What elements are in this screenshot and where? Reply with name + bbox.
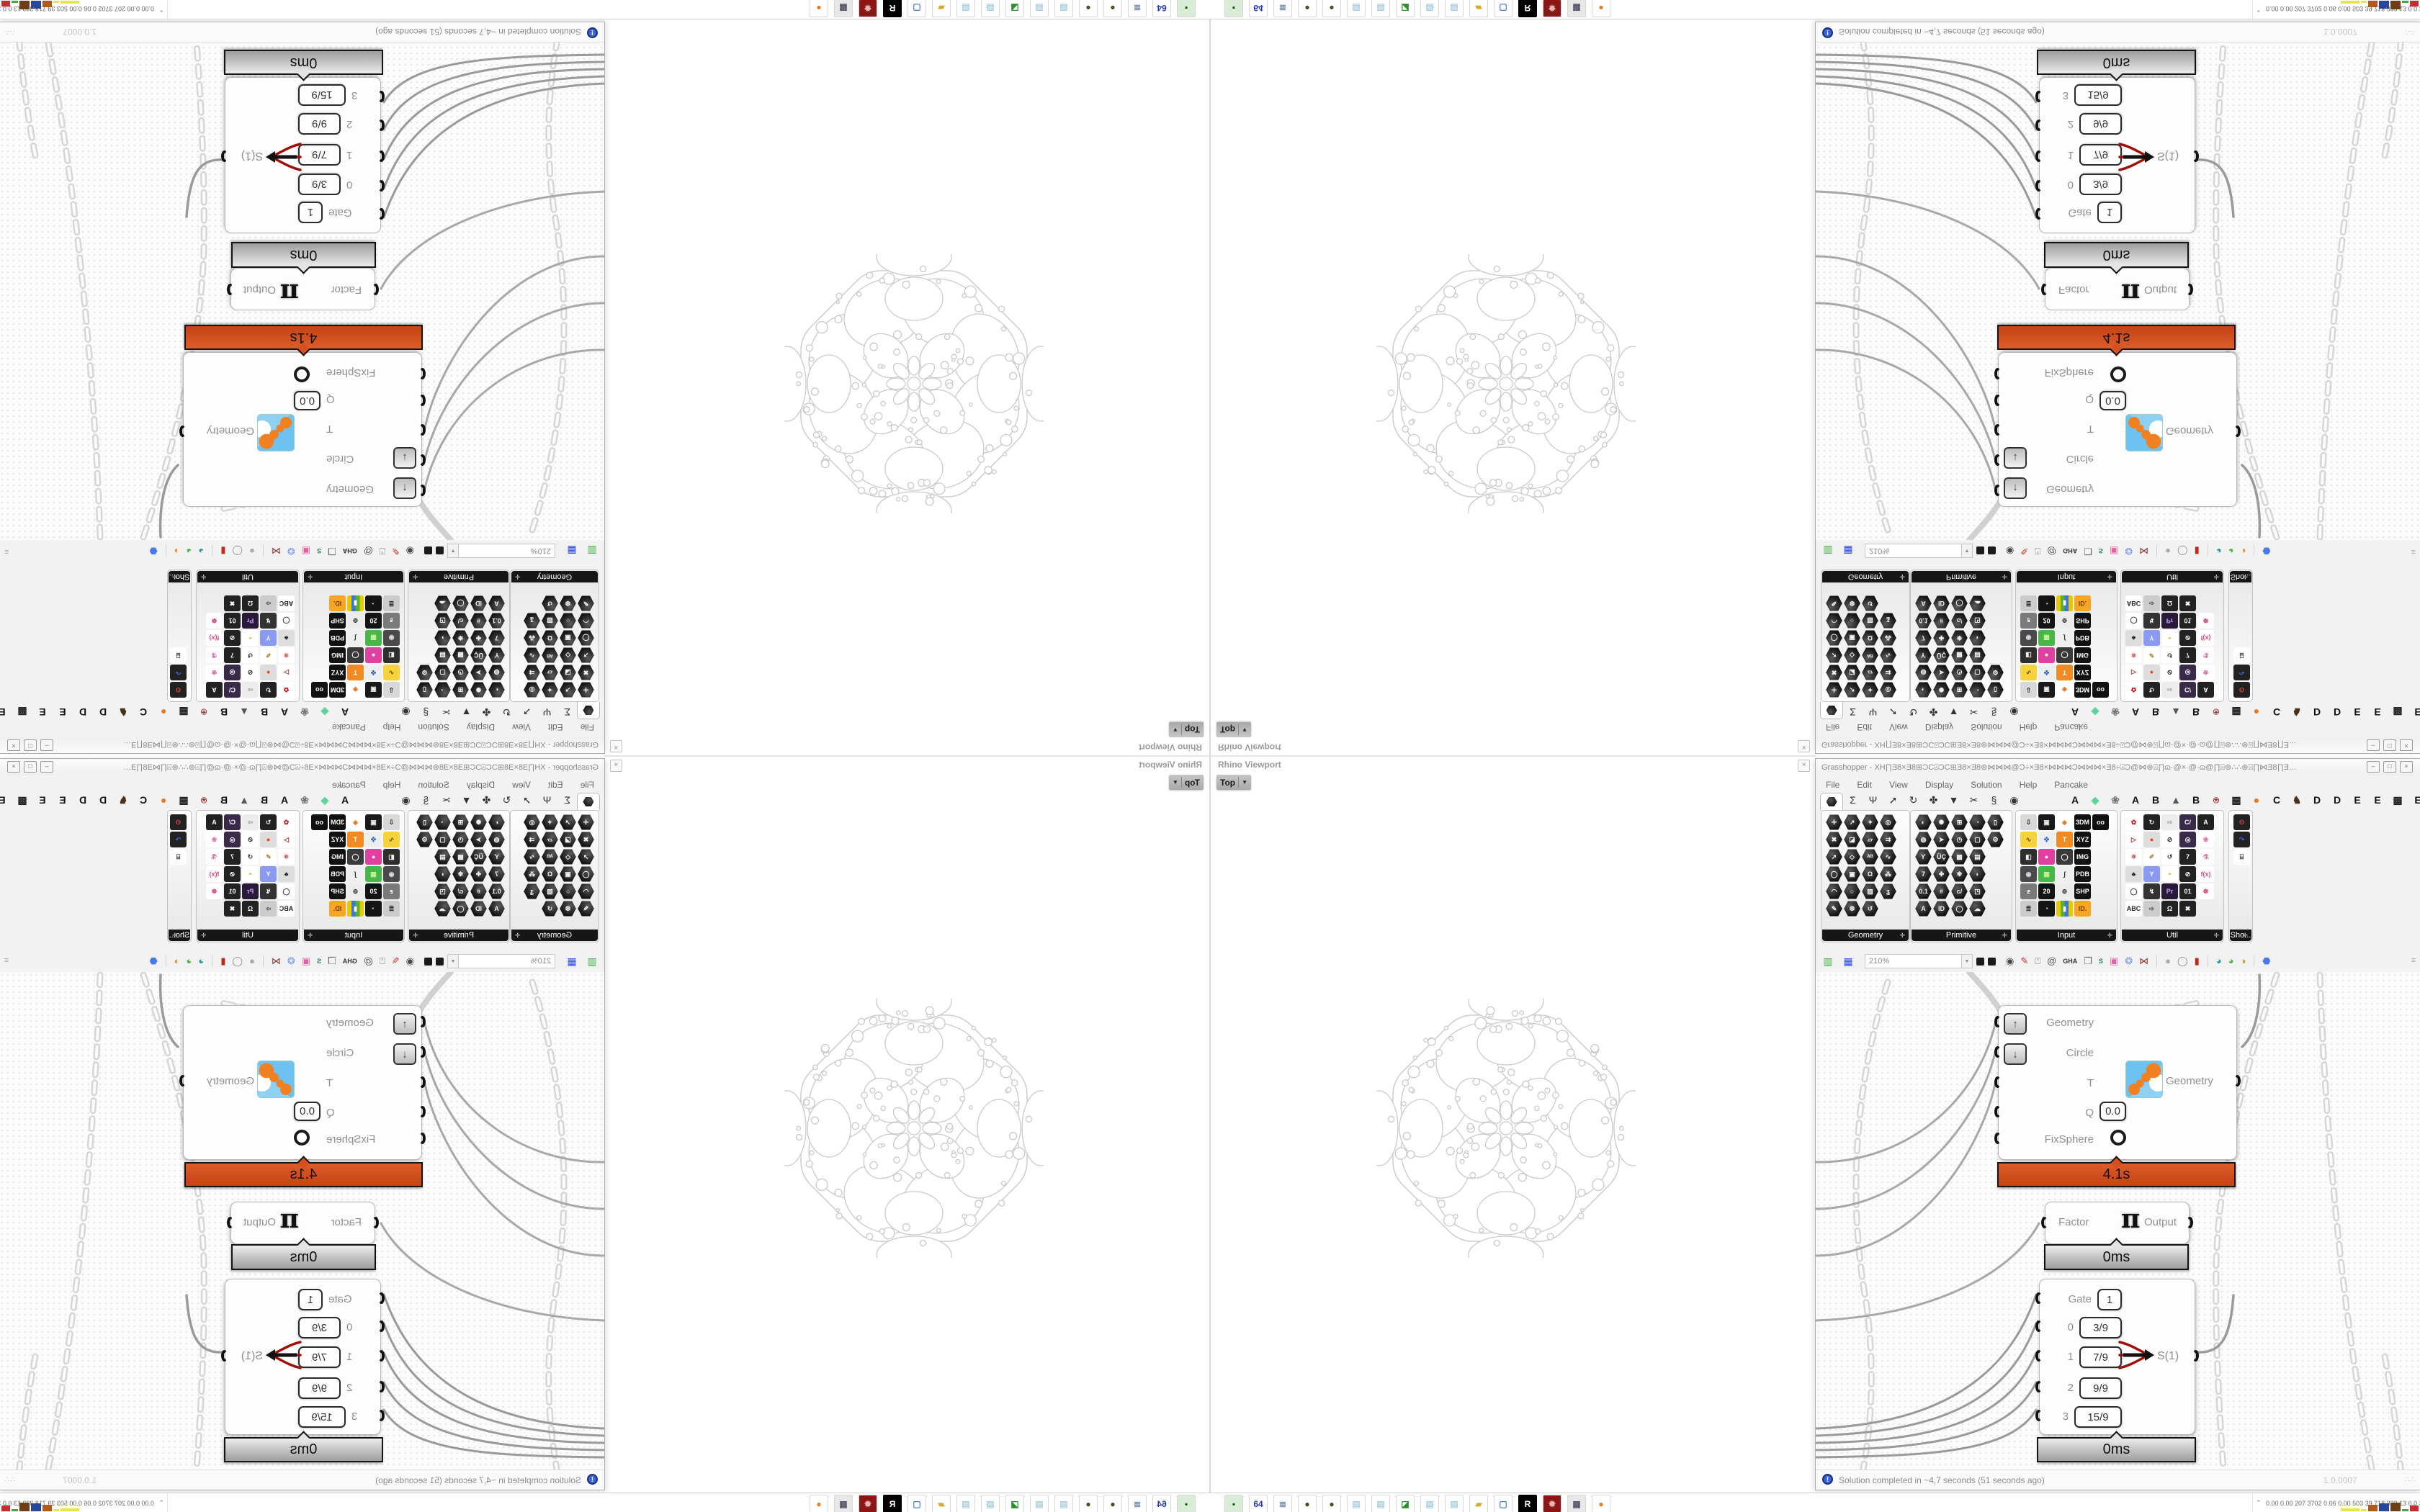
plugin-tab-12[interactable]: D	[2311, 706, 2323, 718]
wire-sphere-icon[interactable]: ◯	[2177, 544, 2188, 558]
plugin-tab-4[interactable]: B	[259, 706, 270, 718]
menu-item-solution[interactable]: Solution	[1971, 722, 2002, 732]
component-icon[interactable]: ◯	[1826, 866, 1842, 882]
component-icon[interactable]: ✺	[1933, 814, 1950, 830]
gate-value-box-3[interactable]: 9/9	[298, 113, 341, 135]
component-icon[interactable]: ∿	[2020, 832, 2037, 847]
component-icon[interactable]: ↗	[1844, 682, 1860, 698]
palette-title-bar[interactable]: Input✛	[2017, 930, 2116, 941]
component-icon[interactable]: ◐	[488, 682, 505, 698]
component-icon[interactable]: c/	[1951, 883, 1968, 899]
component-icon[interactable]: A	[2197, 814, 2214, 830]
component-icon[interactable]: ◎	[524, 814, 540, 830]
component-icon[interactable]: Ω	[242, 901, 259, 917]
component-icon[interactable]: ●	[365, 849, 382, 865]
notepad-icon[interactable]: ▤	[981, 0, 1000, 17]
close-button[interactable]: ×	[7, 739, 20, 751]
menu-item-file[interactable]: File	[1826, 722, 1839, 732]
component-icon[interactable]: c/	[452, 883, 469, 899]
category-tab-icon-2[interactable]: ➚	[521, 706, 532, 718]
component-icon[interactable]: ○	[560, 613, 576, 629]
notepad-icon[interactable]: ▤	[1347, 1495, 1366, 1512]
component-icon[interactable]: 0.1	[1915, 883, 1932, 899]
close-icon[interactable]: ×	[1798, 740, 1810, 752]
calculator-icon[interactable]: ▦	[1567, 1495, 1586, 1512]
component-icon[interactable]: ◪	[560, 832, 576, 847]
blue-hex-icon[interactable]: ⬣	[2262, 544, 2270, 558]
plugin-tab-4[interactable]: B	[2150, 794, 2161, 806]
component-icon[interactable]: T	[2056, 665, 2073, 680]
component-icon[interactable]: ✎	[578, 901, 594, 917]
component-icon[interactable]: oo	[311, 814, 328, 830]
plugin-tab-7[interactable]: ⍟	[198, 794, 210, 806]
component-icon[interactable]: ○	[1844, 883, 1860, 899]
component-icon[interactable]: ▨	[1862, 883, 1878, 899]
plugin-tab-14[interactable]: E	[2352, 794, 2363, 806]
grasshopper-titlebar[interactable]: Grasshopper - XH∏Ǝ8×Ǝ8⊞ƆC⍓ƆC⊞Ǝ8×Ǝ8⊛⋈⋈⋈@Ɔ…	[1816, 759, 2420, 775]
chevron-down-icon[interactable]: ▼	[447, 954, 458, 968]
component-icon[interactable]: ▤	[434, 647, 451, 663]
maximize-button[interactable]: □	[2383, 761, 2396, 773]
component-icon[interactable]: ⚛	[278, 849, 295, 865]
component-icon[interactable]: ⌸	[170, 647, 187, 663]
expand-icon[interactable]: ✛	[515, 573, 521, 581]
component-icon[interactable]: 0.1	[1915, 613, 1932, 629]
plugin-tab-7[interactable]: ⍟	[2210, 794, 2222, 806]
component-icon[interactable]: ↻	[2143, 682, 2160, 698]
zoom-extents-icon[interactable]	[1976, 547, 1984, 555]
palette-title-bar[interactable]: Geometry✛	[511, 930, 598, 941]
component-icon[interactable]: SHP	[329, 613, 346, 629]
component-icon[interactable]: Y	[260, 630, 277, 646]
red-badge-icon[interactable]: ✹	[859, 0, 877, 17]
gate-value-box-2[interactable]: 7/9	[298, 144, 341, 166]
component-icon[interactable]: ⚛	[278, 647, 295, 663]
component-icon[interactable]: #	[1933, 613, 1950, 629]
plugin-tab-0[interactable]: A	[339, 706, 351, 718]
component-icon[interactable]: ◔	[434, 814, 451, 830]
fixsphere-component[interactable]: Geometry↑Circle↓TQ0.0FixSphere Geometry	[1998, 352, 2237, 507]
wire-sphere-icon[interactable]: ◯	[232, 544, 243, 558]
component-icon[interactable]: ∿	[383, 665, 400, 680]
component-icon[interactable]: ➤	[1933, 832, 1950, 847]
component-icon[interactable]: ◐	[488, 814, 505, 830]
component-icon[interactable]: ♣	[278, 866, 295, 882]
component-icon[interactable]: ↗	[1844, 814, 1860, 830]
component-icon[interactable]: ◯	[278, 613, 295, 629]
component-icon[interactable]: 01	[224, 883, 241, 899]
plugin-tab-17[interactable]: E	[2412, 794, 2420, 806]
component-icon[interactable]: ⚙	[1987, 665, 2004, 680]
component-icon[interactable]: ⊚	[347, 613, 364, 629]
plugin-tab-8[interactable]: ▦	[178, 706, 189, 718]
firefox-icon[interactable]: ●	[810, 1495, 828, 1512]
component-icon[interactable]: ◷	[1951, 665, 1968, 680]
component-icon[interactable]: Pr	[242, 883, 259, 899]
plugin-coin-icon[interactable]: ●	[1103, 1495, 1122, 1512]
close-button[interactable]: ×	[2400, 739, 2413, 751]
rhino-icon[interactable]: R	[1518, 0, 1537, 17]
green-sphere-icon[interactable]: ◕	[187, 544, 192, 558]
component-icon[interactable]: ➩	[260, 595, 277, 611]
plugin-tab-8[interactable]: ▦	[2231, 706, 2242, 718]
component-icon[interactable]: ▷	[2125, 665, 2142, 680]
palette-title-bar[interactable]: Geometry✛	[1822, 930, 1909, 941]
component-icon[interactable]: ID	[470, 595, 487, 611]
toolbar-collapse-icon[interactable]: ≡	[2411, 547, 2416, 556]
component-icon[interactable]: PDB	[2074, 866, 2091, 882]
component-icon[interactable]: 3DM	[2074, 814, 2091, 830]
component-icon[interactable]: ◎	[224, 832, 241, 847]
palette-title-bar[interactable]: Sho...✛	[2230, 571, 2251, 582]
plugin-tab-12[interactable]: D	[97, 794, 109, 806]
expand-icon[interactable]: ✛	[308, 932, 313, 940]
terminal-icon[interactable]: ▪	[1177, 0, 1196, 17]
component-icon[interactable]: 20	[365, 883, 382, 899]
component-icon[interactable]: 20	[365, 613, 382, 629]
component-icon[interactable]: ✎	[578, 595, 594, 611]
component-icon[interactable]: ⊘	[2161, 665, 2178, 680]
plugin-tab-9[interactable]: ●	[158, 706, 169, 718]
component-icon[interactable]: ⇩	[383, 682, 400, 698]
component-icon[interactable]: ▨	[542, 613, 558, 629]
component-icon[interactable]: ↺	[1862, 901, 1878, 917]
component-icon[interactable]: ↗	[560, 682, 576, 698]
plugin-tab-13[interactable]: D	[77, 706, 89, 718]
value-box-q[interactable]: 0.0	[294, 1102, 321, 1121]
save-file-icon[interactable]: ▦	[564, 544, 580, 558]
component-icon[interactable]: ✐	[260, 647, 277, 663]
category-tab-icon-3[interactable]: ↻	[501, 706, 512, 718]
component-icon[interactable]: ⊘	[242, 665, 259, 680]
red-badge-icon[interactable]: ✹	[1543, 1495, 1561, 1512]
component-icon[interactable]: ƶ	[2020, 883, 2037, 899]
gate-value-box-3[interactable]: 9/9	[298, 1377, 341, 1399]
component-icon[interactable]: SHP	[2074, 613, 2091, 629]
component-icon[interactable]: 20	[2038, 613, 2055, 629]
chevron-up-icon[interactable]: ⌃	[2256, 1499, 2262, 1507]
menu-item-display[interactable]: Display	[467, 722, 495, 732]
window-icon[interactable]: ❐	[328, 544, 336, 558]
component-icon[interactable]: ✐	[2143, 849, 2160, 865]
component-icon[interactable]: Ƴ	[488, 849, 505, 865]
value-box-q[interactable]: 0.0	[2099, 1102, 2126, 1121]
expand-icon[interactable]: ✛	[172, 573, 178, 581]
plugin-tab-10[interactable]: C	[2271, 706, 2282, 718]
component-icon[interactable]: ▤	[434, 849, 451, 865]
fixsphere-component[interactable]: Geometry↑Circle↓TQ0.0FixSphere Geometry	[183, 1005, 422, 1160]
component-icon[interactable]: ⚛	[2125, 647, 2142, 663]
balloon-icon[interactable]: ❂	[287, 544, 295, 558]
swap-icon[interactable]: ⋈	[272, 954, 281, 968]
component-icon[interactable]: ◉	[2020, 630, 2037, 646]
orange-sphere-icon[interactable]: ◑	[174, 544, 180, 558]
gate-value-box-4[interactable]: 15/9	[2074, 84, 2122, 106]
zoom-extents-icon[interactable]	[436, 958, 444, 966]
rhino-icon[interactable]: R	[883, 1495, 902, 1512]
component-icon[interactable]: ▮	[347, 901, 364, 917]
component-icon[interactable]: ⁂	[524, 866, 540, 882]
component-icon[interactable]: 20	[2038, 883, 2055, 899]
minimize-button[interactable]: –	[2367, 761, 2380, 773]
category-tab-icon-7[interactable]: §	[1989, 794, 1999, 806]
window-icon[interactable]: ❐	[2084, 544, 2092, 558]
palette-title-bar[interactable]: Primitive✛	[409, 571, 508, 582]
expand-icon[interactable]: ✛	[1899, 932, 1905, 940]
component-icon[interactable]: ◔	[1969, 682, 1986, 698]
menu-item-solution[interactable]: Solution	[1971, 780, 2002, 790]
component-icon[interactable]: ◓	[242, 630, 259, 646]
component-icon[interactable]: Pr	[2161, 883, 2178, 899]
component-icon[interactable]: ⇩	[2020, 682, 2037, 698]
toolbar-collapse-icon[interactable]: ≡	[4, 956, 9, 965]
component-icon[interactable]: ◎	[2179, 665, 2196, 680]
expand-icon[interactable]: ✛	[172, 932, 178, 940]
component-icon[interactable]: IMG	[329, 647, 346, 663]
component-icon[interactable]: ▣	[1844, 866, 1860, 882]
component-icon[interactable]: C/	[2179, 814, 2196, 830]
notepad-icon[interactable]: ▤	[1371, 0, 1390, 17]
component-icon[interactable]: c/	[1951, 613, 1968, 629]
expand-icon[interactable]: ✛	[515, 932, 521, 940]
component-icon[interactable]: ◇	[560, 647, 576, 663]
component-icon[interactable]: ▦	[365, 866, 382, 882]
green-sphere-icon[interactable]: ◕	[2228, 954, 2234, 968]
plugin-tab-11[interactable]: ♞	[117, 794, 129, 806]
component-icon[interactable]: ⌸	[2233, 849, 2250, 865]
notepad-icon[interactable]: ▤	[1445, 1495, 1464, 1512]
component-icon[interactable]: ▣	[1844, 630, 1860, 646]
category-tab-icon-0[interactable]: Σ	[1847, 706, 1858, 718]
cluster-icon[interactable]: @	[2047, 544, 2056, 558]
component-icon[interactable]: ⇉	[524, 832, 540, 847]
component-icon[interactable]: ◯	[452, 901, 469, 917]
plugin-tab-8[interactable]: ▦	[2231, 794, 2242, 806]
component-icon[interactable]: ✖	[224, 595, 241, 611]
category-tab-icon-8[interactable]: ◉	[2009, 706, 2020, 718]
component-icon[interactable]: ✚	[470, 630, 487, 646]
component-icon[interactable]: Pr	[2161, 613, 2178, 629]
plugin-tab-0[interactable]: A	[2069, 706, 2081, 718]
expand-icon[interactable]: ✛	[2002, 573, 2007, 581]
chevron-down-icon[interactable]: ▼	[1962, 954, 1973, 968]
expand-icon[interactable]: ✛	[2002, 932, 2007, 940]
red-cylinder-icon[interactable]: ▮	[2195, 954, 2200, 968]
zoom-selection-icon[interactable]	[424, 547, 432, 555]
viewport-tab-top[interactable]: Top ▼	[1169, 722, 1204, 737]
plugin-tab-17[interactable]: E	[2412, 706, 2420, 718]
component-icon[interactable]: ◧	[383, 647, 400, 663]
component-icon[interactable]: ÜÇ	[1933, 647, 1950, 663]
printer-icon[interactable]: ≣	[1128, 1495, 1147, 1512]
component-icon[interactable]: ⚙	[416, 832, 433, 847]
component-icon[interactable]: ⇨	[242, 814, 259, 830]
component-icon[interactable]: ▩	[1951, 647, 1968, 663]
notepad-icon[interactable]: ▤	[956, 1495, 975, 1512]
terminal-icon[interactable]: ▪	[1177, 1495, 1196, 1512]
component-icon[interactable]: ▤	[1969, 849, 1986, 865]
component-icon[interactable]: Y	[260, 866, 277, 882]
component-icon[interactable]: ◍	[1915, 832, 1932, 847]
component-icon[interactable]: ❆	[560, 595, 576, 611]
component-icon[interactable]: ↺	[542, 901, 558, 917]
category-tab-icon-7[interactable]: §	[421, 794, 431, 806]
component-icon[interactable]: IMG	[2074, 849, 2091, 865]
cluster-icon[interactable]: @	[364, 954, 373, 968]
window-icon[interactable]: ❐	[2084, 954, 2092, 968]
component-icon[interactable]: Ω	[542, 866, 558, 882]
zoom-selection-icon[interactable]	[1988, 547, 1996, 555]
component-icon[interactable]: oo	[2092, 814, 2109, 830]
category-tab-icon-8[interactable]: ◉	[400, 706, 411, 718]
component-icon[interactable]: ⊞	[452, 682, 469, 698]
menu-item-help[interactable]: Help	[383, 722, 401, 732]
component-icon[interactable]: ▣	[365, 682, 382, 698]
plugin-tab-15[interactable]: E	[37, 794, 48, 806]
plugin-tab-10[interactable]: C	[138, 706, 149, 718]
plugin-tab-14[interactable]: E	[57, 706, 68, 718]
terminal-icon[interactable]: ▪	[1224, 1495, 1243, 1512]
component-icon[interactable]: ⊘	[2179, 866, 2196, 882]
component-icon[interactable]: ⚙	[416, 665, 433, 680]
component-icon[interactable]: ◯	[2125, 883, 2142, 899]
down-arrow-button[interactable]: ↓	[393, 1043, 416, 1065]
notepad-icon[interactable]: ▤	[956, 0, 975, 17]
component-icon[interactable]: ✺	[470, 814, 487, 830]
minimize-button[interactable]: –	[2367, 739, 2380, 751]
value-box-q[interactable]: 0.0	[294, 391, 321, 410]
component-icon[interactable]: ●	[2143, 665, 2160, 680]
open-file-icon[interactable]: ▥	[584, 954, 600, 968]
category-tab-icon-7[interactable]: §	[421, 706, 431, 718]
component-icon[interactable]: ✐	[260, 849, 277, 865]
component-icon[interactable]: ➤	[470, 665, 487, 680]
component-icon[interactable]: A	[206, 814, 223, 830]
component-icon[interactable]: ◯	[1951, 901, 1968, 917]
component-icon[interactable]: ➤	[1933, 665, 1950, 680]
component-icon[interactable]: T	[2056, 832, 2073, 847]
component-icon[interactable]: ✺	[1933, 682, 1950, 698]
component-icon[interactable]: ☁	[434, 901, 451, 917]
folder-icon[interactable]: ▰	[1469, 1495, 1488, 1512]
component-icon[interactable]: ʓ	[524, 883, 540, 899]
component-icon[interactable]: ♣	[278, 630, 295, 646]
blue-hex-icon[interactable]: ⬣	[2262, 954, 2270, 968]
gha-icon[interactable]: GHA	[343, 954, 357, 968]
minimize-button[interactable]: –	[40, 739, 53, 751]
expand-icon[interactable]: ✛	[413, 573, 418, 581]
component-icon[interactable]: ◗	[434, 866, 451, 882]
bake-icon[interactable]: ⍞	[380, 954, 385, 968]
plugin-tab-5[interactable]: ▲	[238, 706, 250, 718]
gate-output-connector[interactable]	[221, 1350, 228, 1362]
pi-output-connector[interactable]	[2187, 284, 2193, 295]
red-badge-icon[interactable]: ✹	[859, 1495, 877, 1512]
close-button[interactable]: ×	[2400, 761, 2413, 773]
component-icon[interactable]: Y	[2143, 630, 2160, 646]
component-icon[interactable]: 7	[2179, 849, 2196, 865]
component-icon[interactable]: ◉	[2020, 866, 2037, 882]
gate-value-box-0[interactable]: 1	[2097, 1289, 2122, 1310]
palette-title-bar[interactable]: Geometry✛	[1822, 571, 1909, 582]
palette-title-bar[interactable]: Input✛	[304, 930, 403, 941]
preview-eye-icon[interactable]: ◉	[406, 954, 414, 968]
component-icon[interactable]: ☁	[434, 595, 451, 611]
plugin-tab-10[interactable]: C	[138, 794, 149, 806]
menu-item-display[interactable]: Display	[1925, 780, 1953, 790]
component-icon[interactable]: ☸	[2197, 613, 2214, 629]
tab-params-active[interactable]	[577, 702, 600, 719]
component-icon[interactable]: A	[206, 682, 223, 698]
component-icon[interactable]: ⚗	[2197, 647, 2214, 663]
component-icon[interactable]: 3DM	[329, 814, 346, 830]
plugin-tab-0[interactable]: A	[339, 794, 351, 806]
shaded-sphere-icon[interactable]: ●	[249, 544, 255, 558]
component-icon[interactable]: ◔	[365, 901, 382, 917]
balloon-icon[interactable]: ❂	[2125, 954, 2133, 968]
component-icon[interactable]: ▮	[2056, 901, 2073, 917]
component-icon[interactable]: Ω	[1862, 866, 1878, 882]
component-icon[interactable]: f(x)	[206, 866, 223, 882]
component-icon[interactable]: ◍	[488, 665, 505, 680]
close-icon[interactable]: ×	[610, 760, 622, 772]
component-icon[interactable]: ◯	[347, 647, 364, 663]
monitor-chart-icon[interactable]: ◪	[1005, 0, 1024, 17]
component-icon[interactable]: #	[470, 883, 487, 899]
plugin-coin-icon[interactable]: ●	[1079, 1495, 1098, 1512]
grasshopper-titlebar[interactable]: Grasshopper - XH∏Ǝ8×Ǝ8⊞ƆC⍓ƆC⊞Ǝ8×Ǝ8⊛⋈⋈⋈@Ɔ…	[1816, 737, 2420, 753]
component-icon[interactable]: ÜÇ	[470, 647, 487, 663]
component-icon[interactable]: XYZ	[2074, 665, 2091, 680]
box-icon[interactable]: ▣	[302, 544, 310, 558]
fixsphere-toggle[interactable]	[2110, 1130, 2126, 1146]
toolbar-collapse-icon[interactable]: ≡	[2411, 956, 2416, 965]
component-icon[interactable]: ↷	[170, 832, 187, 847]
chevron-down-icon[interactable]: ▼	[1173, 726, 1178, 733]
component-icon[interactable]: f(x)	[2197, 866, 2214, 882]
pi-input-connector[interactable]	[2041, 1217, 2048, 1228]
plugin-tab-3[interactable]: A	[2130, 794, 2141, 806]
plugin-tab-4[interactable]: B	[259, 794, 270, 806]
component-icon[interactable]: ◧	[383, 849, 400, 865]
component-icon[interactable]: ●	[365, 647, 382, 663]
component-icon[interactable]: ⊞	[1951, 682, 1968, 698]
notepad-icon[interactable]: ▤	[1371, 1495, 1390, 1512]
component-icon[interactable]: ✿	[2125, 814, 2142, 830]
viewport-tab-top[interactable]: Top ▼	[1169, 775, 1204, 790]
plugin-coin-icon[interactable]: ●	[1079, 0, 1098, 17]
category-tab-icon-2[interactable]: ➚	[1888, 794, 1899, 806]
folder-icon[interactable]: ▰	[932, 1495, 951, 1512]
component-icon[interactable]: ⇉	[524, 665, 540, 680]
menu-item-help[interactable]: Help	[2020, 780, 2038, 790]
fixsphere-component[interactable]: Geometry↑Circle↓TQ0.0FixSphere Geometry	[1998, 1005, 2237, 1160]
component-icon[interactable]: ID	[1933, 901, 1950, 917]
up-arrow-button[interactable]: ↑	[2004, 1013, 2027, 1035]
component-icon[interactable]: XYZ	[329, 832, 346, 847]
notepad-icon[interactable]: ▤	[1420, 0, 1439, 17]
notepad-icon[interactable]: ▤	[1445, 0, 1464, 17]
red-cylinder-icon[interactable]: ▮	[2195, 544, 2200, 558]
category-tab-icon-6[interactable]: ✂	[1968, 794, 1979, 806]
fixsphere-toggle[interactable]	[294, 366, 310, 382]
component-icon[interactable]: ◓	[2161, 866, 2178, 882]
red-badge-icon[interactable]: ✹	[1543, 0, 1561, 17]
component-icon[interactable]: ▯	[416, 682, 433, 698]
component-icon[interactable]: ᴬᴮ	[542, 647, 558, 663]
component-icon[interactable]: IMG	[329, 849, 346, 865]
component-icon[interactable]: ◯	[452, 595, 469, 611]
